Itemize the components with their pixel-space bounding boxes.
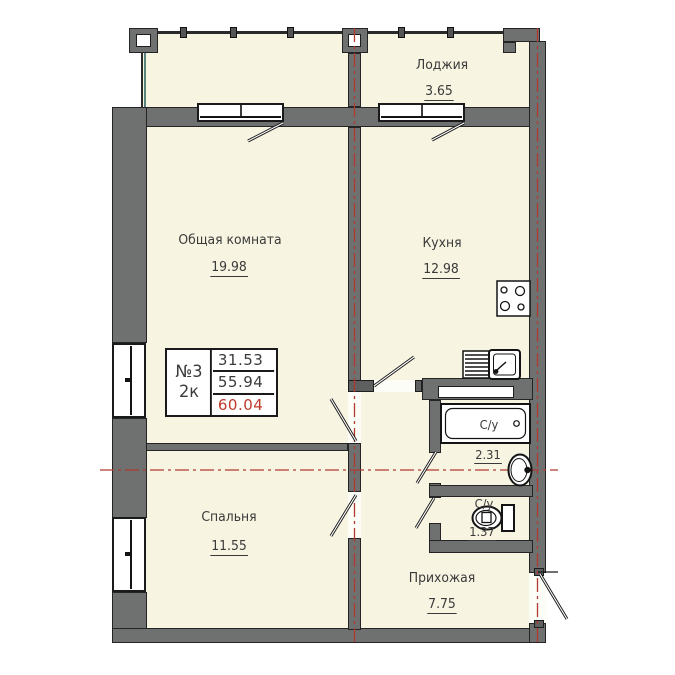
- window-kitchen-balcony: [378, 103, 465, 122]
- kitchen-hall-doorway: [374, 380, 415, 392]
- room-label-wc: С/у: [475, 496, 494, 511]
- room-label-kitchen: Кухня: [422, 235, 461, 251]
- room-area-wc: 1.37: [468, 524, 495, 539]
- wall-bath-top-inset: [438, 386, 514, 398]
- window-living-balcony: [197, 103, 284, 122]
- doorway-cap: [415, 380, 422, 392]
- room-label-bedroom: Спальня: [201, 509, 256, 525]
- area-value: 1.37: [468, 524, 495, 541]
- entry-doorway: [529, 573, 546, 623]
- column-right-a: [503, 28, 540, 42]
- entry-hinge-block: [534, 620, 544, 628]
- glazing-post: [287, 27, 294, 38]
- glazing-post: [230, 27, 237, 38]
- utility-line: [144, 52, 146, 107]
- apartment-rooms-type: 2к: [179, 383, 199, 403]
- window-living-left: [112, 343, 146, 418]
- wall-bedroom: [146, 443, 348, 451]
- living-doorway: [348, 392, 361, 443]
- apartment-info-box: №3 2к 31.53 55.94 60.04: [165, 348, 278, 417]
- loggia-floor: [142, 33, 535, 107]
- column-left-hole: [136, 34, 151, 47]
- wall-center-upper: [348, 127, 361, 390]
- bedroom-doorway: [348, 492, 361, 538]
- area-value: 7.75: [427, 596, 456, 614]
- wall-bath-left-upper: [429, 400, 441, 453]
- glazing-post: [447, 27, 454, 38]
- room-label-loggia: Лоджия: [416, 57, 468, 73]
- area-value: 3.65: [424, 83, 453, 101]
- floor-plan: Лоджия 3.65 Общая комната 19.98 Кухня 12…: [0, 0, 675, 675]
- room-label-living: Общая комната: [178, 232, 281, 248]
- window-bedroom-left: [112, 517, 146, 592]
- area-without-loggia-value: 55.94: [213, 372, 274, 394]
- wall-left-upper: [112, 107, 147, 343]
- room-label-bathroom: С/у: [480, 417, 499, 432]
- apartment-number-cell: №3 2к: [168, 350, 212, 415]
- area-value: 2.31: [474, 447, 501, 464]
- total-area-value: 60.04: [213, 395, 274, 415]
- room-area-hallway: 7.75: [427, 596, 456, 612]
- area-value: 12.98: [422, 261, 459, 279]
- wall-bottom: [112, 628, 545, 643]
- glazing-post: [398, 27, 405, 38]
- room-area-kitchen: 12.98: [422, 261, 459, 277]
- wall-left-pier: [112, 418, 147, 518]
- loggia-left-line: [141, 52, 143, 107]
- column-right-b: [503, 42, 516, 53]
- wall-center-lower: [348, 538, 361, 630]
- area-value: 11.55: [210, 538, 247, 556]
- wall-top: [112, 107, 545, 127]
- entry-hinge-block: [534, 568, 544, 576]
- room-area-bedroom: 11.55: [210, 538, 247, 554]
- wall-wc-bottom: [429, 540, 533, 553]
- wall-center-cap: [348, 380, 374, 392]
- loggia-glazing-line: [143, 31, 535, 34]
- room-label-hallway: Прихожая: [409, 570, 476, 586]
- wall-center-stub: [348, 443, 361, 492]
- area-value: 19.98: [210, 259, 247, 277]
- room-area-loggia: 3.65: [424, 83, 453, 99]
- loggia-divider-wall: [348, 53, 361, 107]
- room-area-living: 19.98: [210, 259, 247, 275]
- column-mid-hole: [348, 34, 361, 47]
- living-area-value: 31.53: [213, 350, 274, 372]
- glazing-post: [180, 27, 187, 38]
- apartment-number: №3: [176, 363, 203, 383]
- room-area-bathroom: 2.31: [474, 447, 501, 462]
- apartment-areas: 31.53 55.94 60.04: [213, 350, 276, 415]
